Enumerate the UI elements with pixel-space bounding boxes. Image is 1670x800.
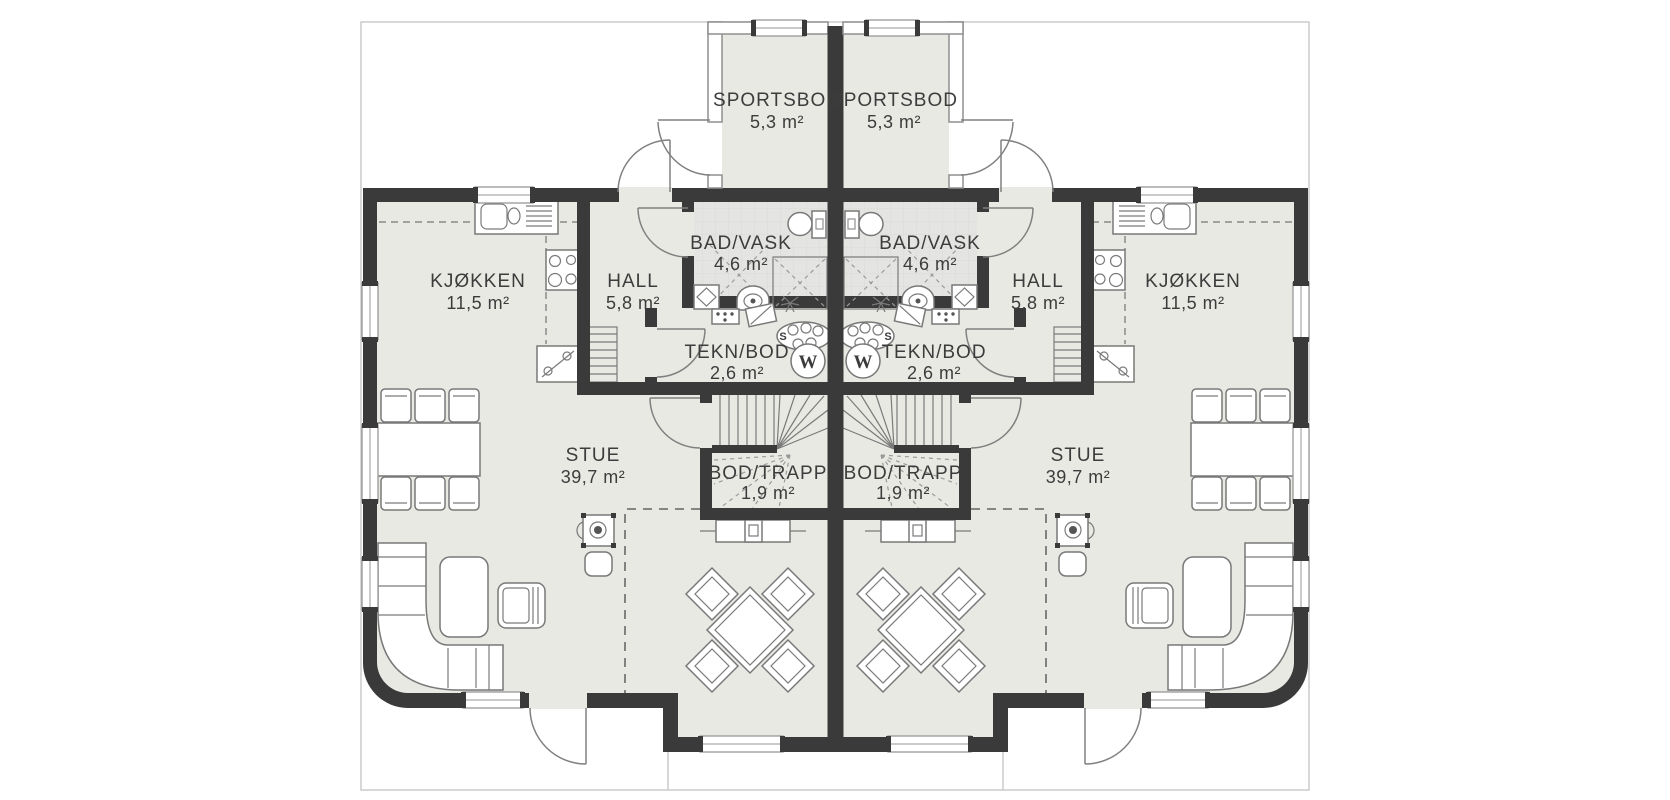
- window: [473, 187, 535, 203]
- room-label-bodtrapp-left: BOD/TRAPP: [709, 463, 828, 484]
- room-area-stue-right: 39,7 m²: [1046, 467, 1111, 487]
- room-area-teknbod-right: 2,6 m²: [907, 363, 961, 383]
- stove: [546, 250, 580, 290]
- room-label-badvask-left: BAD/VASK: [690, 233, 792, 254]
- room-area-bodtrapp-right: 1,9 m²: [876, 483, 930, 503]
- room-label-stue-left: STUE: [566, 445, 621, 466]
- window: [362, 281, 378, 342]
- water-heater-label-left: W: [799, 352, 818, 373]
- room-label-sportsbod-right: SPORTSBOD: [830, 90, 958, 111]
- window: [362, 423, 378, 504]
- dining-table: [377, 423, 480, 476]
- window: [362, 556, 378, 612]
- side-table: [585, 552, 612, 576]
- coffee-table: [440, 557, 488, 637]
- room-area-hall-right: 5,8 m²: [1011, 293, 1065, 313]
- room-label-sportsbod-left: SPORTSBOD: [713, 90, 841, 111]
- room-area-sportsbod-right: 5,3 m²: [867, 112, 921, 132]
- room-label-hall-right: HALL: [1012, 271, 1064, 292]
- floor-plan-page: SPORTSBOD 5,3 m² SPORTSBOD 5,3 m² BAD/VA…: [0, 0, 1670, 800]
- sportsbod-floor: [722, 34, 828, 188]
- room-area-teknbod-left: 2,6 m²: [710, 363, 764, 383]
- room-label-kjokken-right: KJØKKEN: [1145, 271, 1241, 292]
- dining-set: [377, 389, 480, 510]
- entry-door-opening: [619, 187, 672, 203]
- room-area-bodtrapp-left: 1,9 m²: [741, 483, 795, 503]
- sportsbod-door: [658, 120, 710, 175]
- room-label-hall-left: HALL: [607, 271, 659, 292]
- window: [751, 20, 807, 36]
- entry-door: [618, 140, 670, 192]
- toilet: [788, 211, 826, 238]
- room-area-kjokken-right: 11,5 m²: [1161, 293, 1224, 313]
- garden-door-opening: [529, 692, 587, 709]
- fridge: [537, 346, 579, 382]
- room-area-stue-left: 39,7 m²: [561, 467, 626, 487]
- room-area-kjokken-left: 11,5 m²: [446, 293, 509, 313]
- room-label-teknbod-left: TEKN/BOD: [684, 342, 789, 363]
- room-label-bodtrapp-right: BOD/TRAPP: [844, 463, 963, 484]
- floor-plan-svg: SPORTSBOD 5,3 m² SPORTSBOD 5,3 m² BAD/VA…: [0, 0, 1670, 800]
- distributor-label-left: S: [779, 331, 786, 343]
- room-label-teknbod-right: TEKN/BOD: [881, 342, 986, 363]
- room-label-badvask-right: BAD/VASK: [879, 233, 981, 254]
- armchair: [498, 583, 545, 628]
- tv-bench: [700, 520, 806, 542]
- garden-door: [530, 708, 586, 764]
- room-label-stue-right: STUE: [1051, 445, 1106, 466]
- distributor-label-right: S: [884, 331, 891, 343]
- floor-drain-cabinet: [694, 285, 719, 309]
- room-area-hall-left: 5,8 m²: [606, 293, 660, 313]
- room-area-badvask-right: 4,6 m²: [903, 254, 957, 274]
- room-area-sportsbod-left: 5,3 m²: [750, 112, 804, 132]
- water-heater-label-right: W: [854, 352, 873, 373]
- window: [698, 736, 785, 752]
- room-area-badvask-left: 4,6 m²: [714, 254, 768, 274]
- wall-vent: [712, 309, 739, 324]
- window: [461, 692, 525, 708]
- room-label-kjokken-left: KJØKKEN: [430, 271, 526, 292]
